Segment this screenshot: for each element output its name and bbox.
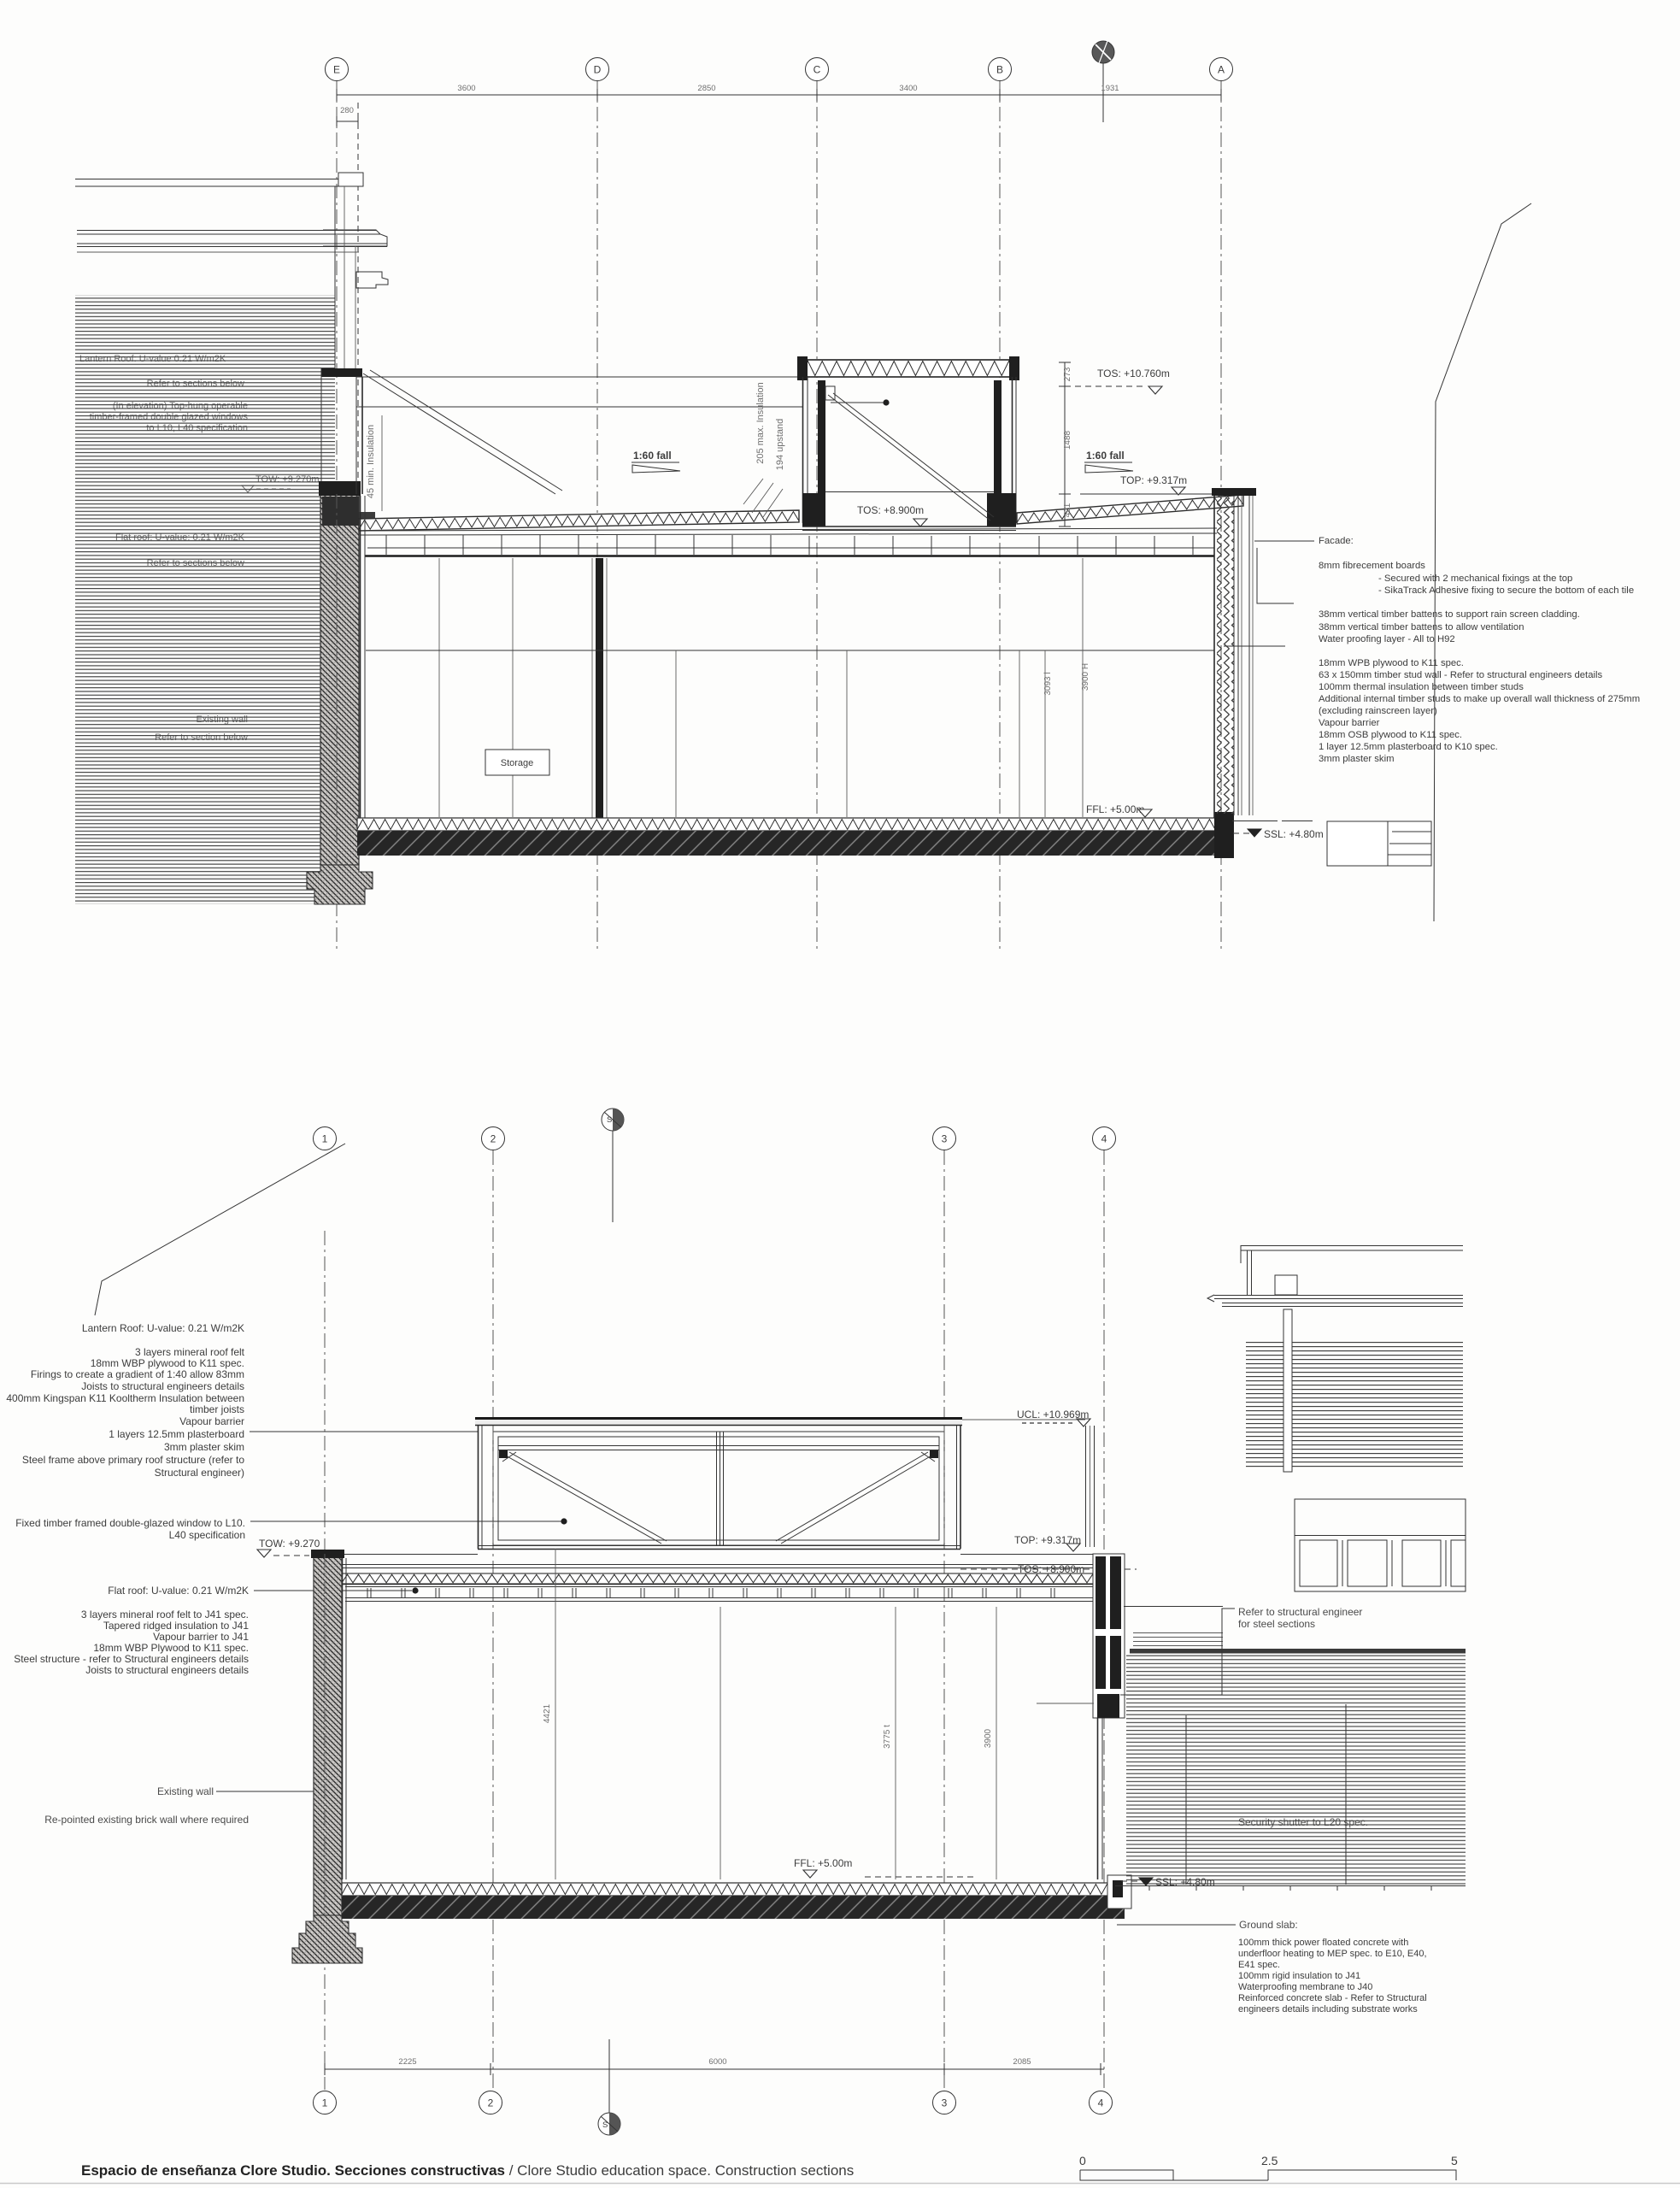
svg-text:1488: 1488	[1063, 430, 1072, 450]
svg-text:for steel sections: for steel sections	[1238, 1618, 1315, 1630]
svg-text:Structural engineer): Structural engineer)	[155, 1467, 244, 1479]
svg-text:D: D	[594, 64, 602, 76]
svg-text:1: 1	[322, 1133, 328, 1145]
svg-text:1:60 fall: 1:60 fall	[633, 450, 672, 462]
svg-text:timber joists: timber joists	[190, 1403, 244, 1415]
svg-text:Waterproofing membrane to J40: Waterproofing membrane to J40	[1238, 1982, 1372, 1992]
svg-text:3 layers mineral roof felt to: 3 layers mineral roof felt to J41 spec.	[81, 1609, 249, 1620]
svg-text:4421: 4421	[543, 1703, 552, 1723]
svg-text:Vapour barrier: Vapour barrier	[1319, 718, 1380, 728]
svg-text:0: 0	[1079, 2154, 1086, 2167]
svg-text:C: C	[814, 64, 821, 76]
svg-text:3mm plaster skim: 3mm plaster skim	[164, 1441, 244, 1453]
svg-text:TOS: +8.900m: TOS: +8.900m	[857, 504, 924, 516]
svg-text:3: 3	[942, 2097, 948, 2109]
svg-text:280: 280	[340, 106, 354, 115]
svg-text:400mm Kingspan K11 Kooltherm I: 400mm Kingspan K11 Kooltherm Insulation …	[6, 1392, 244, 1404]
svg-text:2.5: 2.5	[1261, 2154, 1278, 2167]
svg-text:Firings to create a gradient o: Firings to create a gradient of 1:40 all…	[31, 1368, 244, 1380]
svg-text:3775 t: 3775 t	[883, 1725, 892, 1749]
svg-text:18mm WBP Plywood to K11 spec.: 18mm WBP Plywood to K11 spec.	[93, 1642, 249, 1654]
svg-text:SSL: +4.80m: SSL: +4.80m	[1155, 1876, 1215, 1888]
svg-text:273: 273	[1063, 367, 1072, 381]
svg-text:TOS: +10.760m: TOS: +10.760m	[1097, 368, 1170, 379]
svg-text:3: 3	[942, 1133, 948, 1145]
svg-text:TOP: +9.317m: TOP: +9.317m	[1120, 474, 1187, 486]
svg-text:S: S	[607, 1115, 612, 1125]
svg-text:Joists to structural engineers: Joists to structural engineers details	[85, 1664, 249, 1676]
svg-text:1931: 1931	[1101, 84, 1119, 93]
svg-text:3600: 3600	[457, 84, 475, 93]
svg-text:18mm WPB plywood to K11 spec.: 18mm WPB plywood to K11 spec.	[1319, 658, 1464, 668]
svg-text:194 upstand: 194 upstand	[775, 419, 785, 471]
svg-text:SSL: +4.80m: SSL: +4.80m	[1264, 828, 1324, 840]
svg-text:100mm thermal insulation betwe: 100mm thermal insulation between timber …	[1319, 682, 1524, 692]
svg-text:Flat roof: U-value: 0.21 W/m2K: Flat roof: U-value: 0.21 W/m2K	[108, 1585, 249, 1597]
svg-text:1:60 fall: 1:60 fall	[1086, 450, 1125, 462]
svg-text:Reinforced concrete slab - Re: Reinforced concrete slab - Refer to Stru…	[1238, 1993, 1427, 2003]
svg-text:2225: 2225	[398, 2057, 416, 2067]
svg-text:engineers details including su: engineers details including substrate wo…	[1238, 2004, 1418, 2014]
svg-text:Water proofing layer - All to: Water proofing layer - All to H92	[1319, 634, 1455, 644]
svg-text:Facade:: Facade:	[1319, 536, 1354, 546]
svg-text:Steel frame above primary roof: Steel frame above primary roof structure…	[22, 1454, 244, 1466]
svg-text:5: 5	[1451, 2154, 1458, 2167]
svg-text:- SikaTrack Adhesive fixing to: - SikaTrack Adhesive fixing to secure th…	[1378, 585, 1634, 596]
svg-text:100mm rigid insulation to J41: 100mm rigid insulation to J41	[1238, 1971, 1360, 1981]
svg-text:Storage: Storage	[501, 758, 534, 768]
svg-text:FFL: +5.00m: FFL: +5.00m	[1086, 803, 1144, 815]
svg-text:underfloor heating to MEP spec: underfloor heating to MEP spec. to E10, …	[1238, 1949, 1427, 1959]
svg-text:63 x 150mm timber stud wall -: 63 x 150mm timber stud wall - Refer to s…	[1319, 670, 1602, 680]
svg-text:Additional internal timber stu: Additional internal timber studs to make…	[1319, 694, 1640, 704]
svg-text:2850: 2850	[697, 84, 715, 93]
svg-text:6000: 6000	[708, 2057, 726, 2067]
svg-text:Existing wall: Existing wall	[157, 1785, 214, 1797]
svg-text:A: A	[1218, 64, 1225, 76]
svg-text:Re-pointed existing brick wall: Re-pointed existing brick wall where req…	[44, 1814, 249, 1826]
svg-text:3mm plaster skim: 3mm plaster skim	[1319, 754, 1395, 764]
svg-text:Vapour barrier to J41: Vapour barrier to J41	[153, 1631, 249, 1643]
svg-text:38mm vertical timber battens t: 38mm vertical timber battens to support …	[1319, 609, 1580, 620]
svg-text:L40 specification: L40 specification	[169, 1529, 245, 1541]
svg-text:3 layers mineral roof felt: 3 layers mineral roof felt	[135, 1346, 245, 1358]
svg-text:Ground slab:: Ground slab:	[1239, 1919, 1298, 1931]
svg-text:45 min. Insulation: 45 min. Insulation	[366, 425, 376, 498]
svg-text:3400: 3400	[899, 84, 917, 93]
svg-text:100mm thick power floated conc: 100mm thick power floated concrete with	[1238, 1938, 1408, 1948]
svg-text:3900 H: 3900 H	[1081, 663, 1090, 691]
svg-text:3900: 3900	[984, 1728, 993, 1748]
svg-text:421: 421	[1063, 503, 1072, 517]
svg-text:Espacio de enseñanza Clore Stu: Espacio de enseñanza Clore Studio. Secci…	[81, 2162, 854, 2179]
svg-text:S: S	[602, 2120, 608, 2130]
svg-text:1 layer 12.5mm plasterboard to: 1 layer 12.5mm plasterboard to K10 spec.	[1319, 742, 1498, 752]
svg-text:2: 2	[488, 2097, 494, 2109]
svg-text:18mm WBP plywood to K11 spec.: 18mm WBP plywood to K11 spec.	[91, 1357, 244, 1369]
svg-text:8mm fibrecement boards: 8mm fibrecement boards	[1319, 561, 1425, 571]
svg-text:Vapour barrier: Vapour barrier	[179, 1415, 244, 1427]
svg-text:FFL: +5.00m: FFL: +5.00m	[794, 1857, 852, 1869]
svg-text:Tapered ridged insulation to J: Tapered ridged insulation to J41	[103, 1620, 249, 1632]
svg-text:3093 l: 3093 l	[1043, 672, 1053, 695]
svg-text:TOW: +9.270: TOW: +9.270	[259, 1538, 320, 1550]
svg-text:E: E	[333, 64, 340, 76]
svg-text:2085: 2085	[1013, 2057, 1031, 2067]
svg-text:Refer to structural engineer: Refer to structural engineer	[1238, 1606, 1362, 1618]
svg-text:- Secured with 2 mechanical fi: - Secured with 2 mechanical fixings at t…	[1378, 573, 1572, 584]
svg-text:(excluding rainscreen layer): (excluding rainscreen layer)	[1319, 706, 1437, 716]
svg-text:B: B	[996, 64, 1003, 76]
svg-text:1: 1	[322, 2097, 328, 2109]
svg-text:205 max. Insulation: 205 max. Insulation	[755, 382, 766, 463]
svg-text:4: 4	[1101, 1133, 1107, 1145]
svg-text:Steel structure - refer to Str: Steel structure - refer to Structural en…	[14, 1653, 249, 1665]
svg-text:38mm vertical timber battens t: 38mm vertical timber battens to allow ve…	[1319, 622, 1524, 632]
svg-text:E41 spec.: E41 spec.	[1238, 1960, 1280, 1970]
svg-text:Joists to structural engineers: Joists to structural engineers details	[81, 1380, 244, 1392]
svg-text:1 layers 12.5mm plasterboard: 1 layers 12.5mm plasterboard	[109, 1428, 244, 1440]
svg-text:Fixed timber framed double-gla: Fixed timber framed double-glazed window…	[15, 1517, 245, 1529]
svg-text:4: 4	[1098, 2097, 1104, 2109]
svg-text:2: 2	[490, 1133, 496, 1145]
svg-text:18mm OSB plywood to K11 spec.: 18mm OSB plywood to K11 spec.	[1319, 730, 1462, 740]
svg-text:Lantern Roof: U-value: 0.21 W/: Lantern Roof: U-value: 0.21 W/m2K	[82, 1322, 244, 1334]
